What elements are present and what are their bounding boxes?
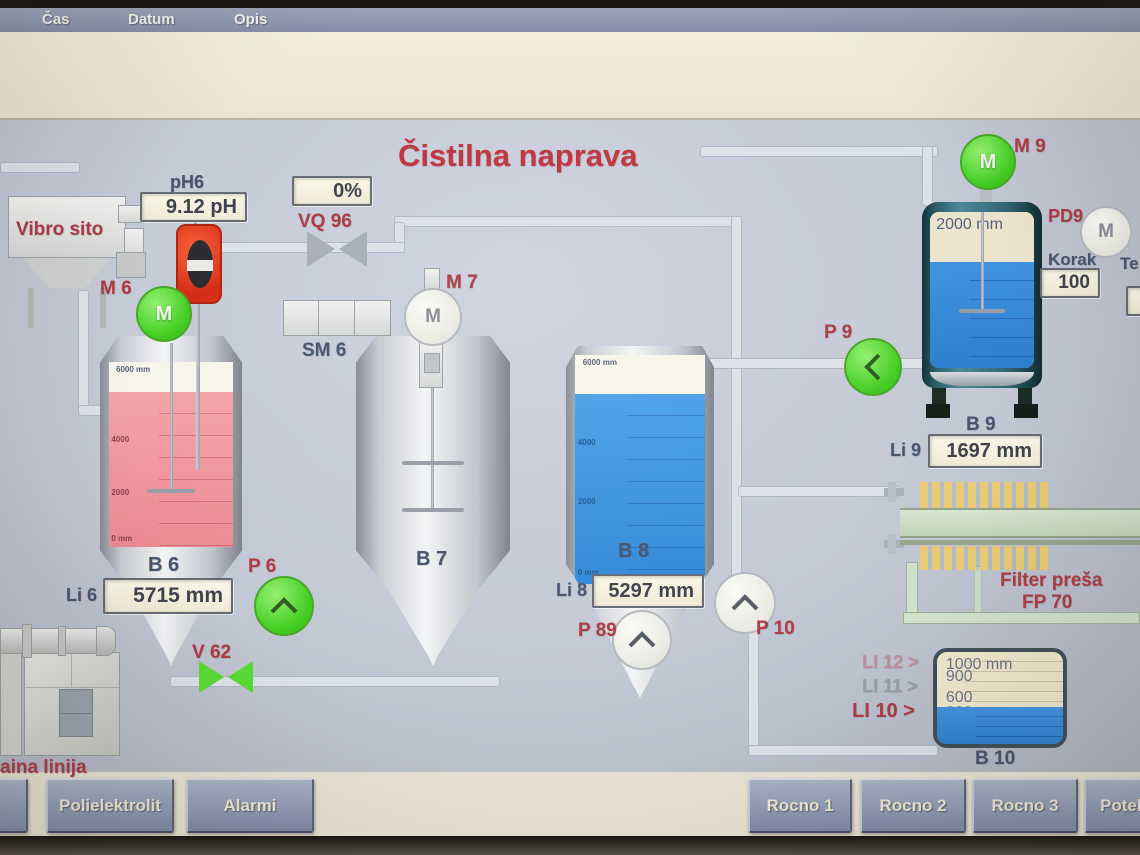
photo-edge-top bbox=[0, 0, 1140, 8]
button-alarmi[interactable]: Alarmi bbox=[186, 778, 314, 833]
p10-label: P 10 bbox=[756, 618, 795, 640]
sm6-label: SM 6 bbox=[302, 340, 346, 362]
vibro-sito-motor bbox=[116, 252, 146, 278]
p9-pump[interactable] bbox=[844, 338, 902, 396]
alarm-list-empty-row[interactable] bbox=[0, 32, 1140, 120]
chevron-left-icon bbox=[860, 350, 886, 384]
ph6-value: 9.12 pH bbox=[166, 196, 237, 219]
m7-motor-symbol: M bbox=[425, 306, 441, 328]
li6-level-display: 5715 mm bbox=[103, 578, 233, 614]
b7-agitator-paddle bbox=[402, 461, 464, 465]
b6-agitator-shaft bbox=[170, 343, 173, 495]
hmi-screen: Čas Datum Opis Čistilna naprava Vibro si… bbox=[0, 0, 1140, 855]
m6-motor[interactable]: M bbox=[136, 286, 192, 342]
fp70-rail bbox=[900, 540, 1140, 545]
vibro-sito-label: Vibro sito bbox=[16, 219, 103, 241]
m9-motor[interactable]: M bbox=[960, 134, 1016, 190]
sm6-conveyor[interactable] bbox=[283, 300, 391, 336]
button-rocno-3[interactable]: Rocno 3 bbox=[972, 778, 1078, 833]
vibro-sito-body[interactable]: Vibro sito bbox=[8, 196, 126, 258]
vq96-label: VQ 96 bbox=[298, 211, 352, 233]
fp70-tag-label: FP 70 bbox=[1022, 592, 1072, 614]
p9-label: P 9 bbox=[824, 322, 852, 344]
vibro-sito-leg bbox=[28, 288, 34, 328]
button-potek[interactable]: Potek bbox=[1084, 778, 1140, 833]
b7-agitator-paddle bbox=[402, 508, 464, 512]
alarm-col-time[interactable]: Čas bbox=[42, 11, 70, 28]
b6-scale-top: 6000 mm bbox=[116, 365, 150, 374]
pipe bbox=[738, 486, 900, 497]
pipe bbox=[748, 745, 938, 756]
chevron-up-icon bbox=[728, 590, 762, 616]
p89-label: P 89 bbox=[578, 620, 617, 642]
korak-value: 100 bbox=[1058, 272, 1090, 294]
b6-label: B 6 bbox=[148, 554, 179, 577]
li9-level-value: 1697 mm bbox=[946, 440, 1032, 463]
ph-probe-window bbox=[187, 260, 213, 271]
page-title: Čistilna naprava bbox=[398, 138, 637, 174]
li8-level-display: 5297 mm bbox=[592, 574, 704, 608]
pipe bbox=[0, 162, 80, 173]
alarm-col-description[interactable]: Opis bbox=[234, 11, 267, 28]
sludge-pipe-cap bbox=[96, 626, 116, 656]
button-rocno-1[interactable]: Rocno 1 bbox=[748, 778, 852, 833]
ph-probe-head[interactable] bbox=[176, 224, 222, 304]
b9-foot bbox=[926, 404, 950, 418]
m7-motor[interactable]: M bbox=[404, 288, 462, 346]
te-label: Te bbox=[1120, 254, 1139, 274]
li9-level-display: 1697 mm bbox=[928, 434, 1042, 468]
button-rocno-2[interactable]: Rocno 2 bbox=[860, 778, 966, 833]
button-alarmi-label: Alarmi bbox=[224, 796, 277, 816]
fp70-plates-bottom bbox=[920, 546, 1048, 570]
vq96-value: 0% bbox=[333, 180, 362, 203]
tank-b9: 2000 mm bbox=[922, 202, 1042, 388]
vq96-value-display: 0% bbox=[292, 176, 372, 206]
sludge-line-label: aina linija bbox=[0, 757, 87, 779]
m6-label: M 6 bbox=[100, 278, 132, 300]
b8-label: B 8 bbox=[618, 540, 649, 563]
ph6-value-display: 9.12 pH bbox=[140, 192, 247, 222]
button-rocno-1-label: Rocno 1 bbox=[766, 796, 833, 816]
pd9-label: PD9 bbox=[1048, 206, 1083, 227]
li10-label: LI 10 > bbox=[852, 700, 915, 723]
pipe bbox=[731, 216, 742, 578]
li9-label: Li 9 bbox=[890, 440, 921, 461]
v62-valve[interactable] bbox=[198, 660, 254, 694]
b9-scale-top: 2000 mm bbox=[936, 216, 1003, 234]
photo-edge-bottom bbox=[0, 836, 1140, 855]
pipe bbox=[700, 146, 938, 157]
fp70-axle-cap bbox=[888, 482, 896, 502]
sludge-pipe-flange bbox=[58, 626, 66, 656]
korak-label: Korak bbox=[1048, 250, 1096, 270]
alarm-header-bar: Čas Datum Opis bbox=[0, 8, 1140, 32]
b8-scale-top: 6000 mm bbox=[583, 358, 617, 367]
li8-label: Li 8 bbox=[556, 580, 587, 601]
b8-scale-strip: 6000 mm bbox=[575, 355, 705, 395]
m6-motor-symbol: M bbox=[156, 303, 173, 326]
ph-probe-rod bbox=[196, 302, 200, 470]
b7-label: B 7 bbox=[416, 548, 447, 571]
button-potek-label: Potek bbox=[1100, 796, 1140, 816]
pipe bbox=[922, 146, 933, 206]
b6-scale-mid: 4000 bbox=[111, 435, 129, 444]
fp70-name-label: Filter preša bbox=[1000, 570, 1102, 592]
vq96-valve[interactable] bbox=[306, 230, 368, 268]
b9-foot bbox=[1014, 404, 1038, 418]
button-partial-left[interactable] bbox=[0, 778, 28, 833]
li6-level-value: 5715 mm bbox=[133, 584, 223, 608]
korak-value-display[interactable]: 100 bbox=[1040, 268, 1100, 298]
sludge-machine-body[interactable] bbox=[24, 652, 120, 756]
fp70-axle-cap bbox=[888, 534, 896, 554]
pipe bbox=[394, 216, 742, 227]
button-polielektrolit-label: Polielektrolit bbox=[59, 796, 161, 816]
b10-label: B 10 bbox=[975, 748, 1015, 770]
fp70-beam[interactable] bbox=[900, 508, 1140, 538]
b8-scale-low: 2000 bbox=[578, 497, 596, 506]
b8-scale-mid: 4000 bbox=[578, 438, 596, 447]
chevron-up-icon bbox=[267, 593, 301, 619]
sludge-machine-window bbox=[59, 689, 93, 737]
li12-label: LI 12 > bbox=[862, 652, 919, 673]
m9-label: M 9 bbox=[1014, 136, 1046, 158]
m7-label: M 7 bbox=[446, 272, 478, 294]
button-polielektrolit[interactable]: Polielektrolit bbox=[46, 778, 174, 833]
p6-pump[interactable] bbox=[254, 576, 314, 636]
chevron-up-icon bbox=[625, 627, 659, 653]
pipe bbox=[78, 290, 89, 416]
fp70-plates-top bbox=[920, 482, 1048, 510]
li6-label: Li 6 bbox=[66, 585, 97, 606]
b9-bottom-dome bbox=[930, 372, 1034, 386]
pd9-motor-symbol: M bbox=[1098, 221, 1114, 243]
fp70-leg bbox=[974, 566, 982, 616]
b6-scale-low: 2000 bbox=[111, 488, 129, 497]
tank-b10: 1000 mm 900 600 300 bbox=[933, 648, 1067, 748]
sludge-machine-side bbox=[0, 652, 22, 756]
button-rocno-2-label: Rocno 2 bbox=[879, 796, 946, 816]
sludge-pipe-top bbox=[0, 628, 108, 654]
button-rocno-3-label: Rocno 3 bbox=[991, 796, 1058, 816]
sludge-pipe-flange bbox=[22, 624, 32, 658]
b6-scale-zero: 0 mm bbox=[111, 534, 132, 543]
b9-label: B 9 bbox=[966, 414, 996, 436]
ph6-label: pH6 bbox=[170, 172, 204, 193]
p6-label: P 6 bbox=[248, 556, 276, 578]
m9-motor-symbol: M bbox=[980, 151, 997, 174]
b6-agitator-paddle bbox=[147, 489, 195, 493]
alarm-col-date[interactable]: Datum bbox=[128, 11, 175, 28]
pipe bbox=[748, 620, 759, 756]
li11-label: LI 11 > bbox=[862, 676, 918, 697]
v62-label: V 62 bbox=[192, 642, 231, 664]
li8-level-value: 5297 mm bbox=[608, 580, 694, 603]
te-value-display bbox=[1126, 286, 1140, 316]
p89-pump[interactable] bbox=[612, 610, 672, 670]
b10-liquid-blue bbox=[937, 707, 1063, 744]
